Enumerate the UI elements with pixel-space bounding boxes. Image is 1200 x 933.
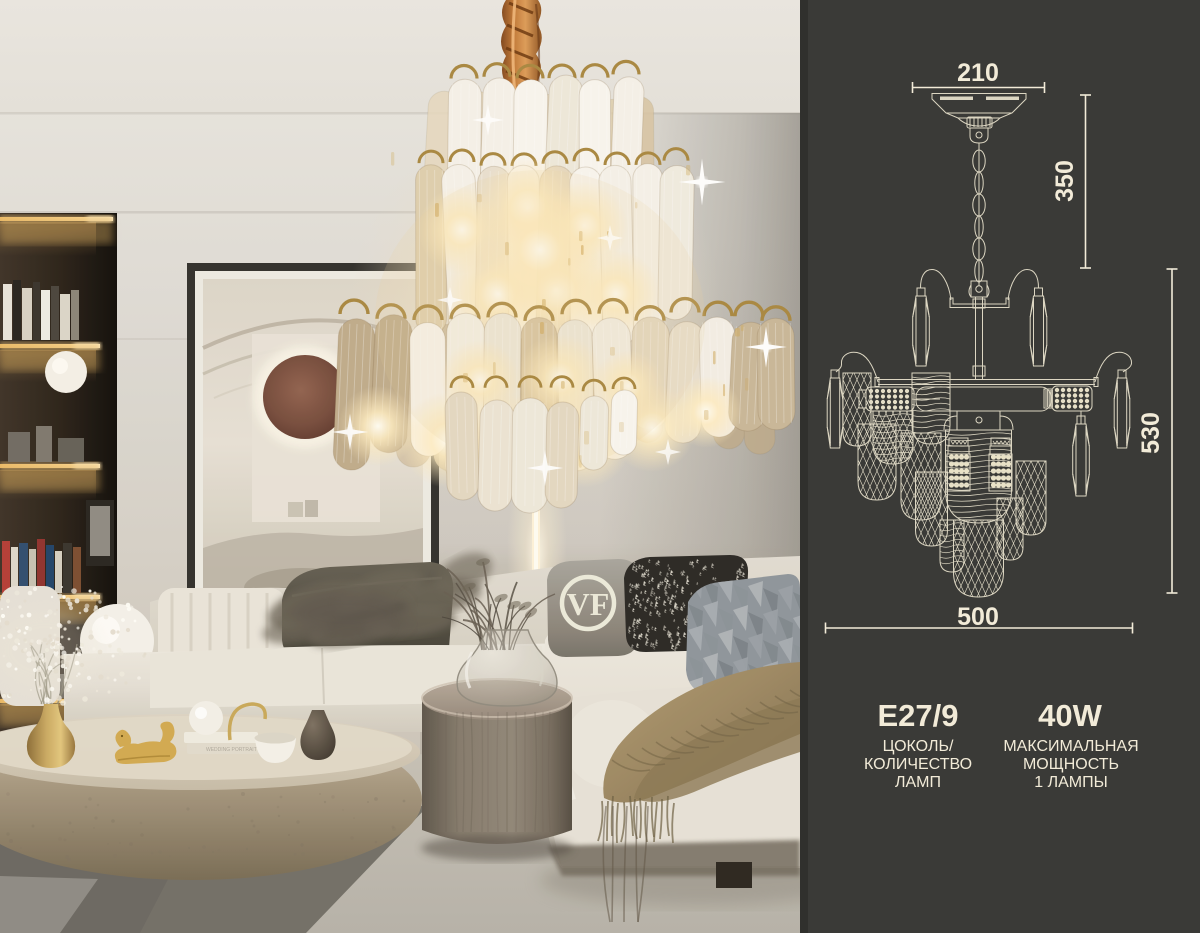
svg-text:210: 210 [957, 59, 999, 87]
svg-text:МАКСИМАЛЬНАЯ: МАКСИМАЛЬНАЯ [1003, 738, 1138, 755]
svg-text:1 ЛАМПЫ: 1 ЛАМПЫ [1034, 774, 1108, 791]
svg-text:МОЩНОСТЬ: МОЩНОСТЬ [1023, 756, 1119, 773]
svg-text:ЛАМП: ЛАМП [895, 774, 941, 791]
svg-text:КОЛИЧЕСТВО: КОЛИЧЕСТВО [864, 756, 972, 773]
svg-text:40W: 40W [1038, 698, 1102, 733]
svg-text:500: 500 [957, 603, 999, 631]
svg-text:E27/9: E27/9 [877, 698, 958, 733]
svg-text:530: 530 [1137, 412, 1165, 454]
svg-text:ЦОКОЛЬ/: ЦОКОЛЬ/ [883, 738, 954, 755]
svg-text:350: 350 [1051, 160, 1079, 202]
